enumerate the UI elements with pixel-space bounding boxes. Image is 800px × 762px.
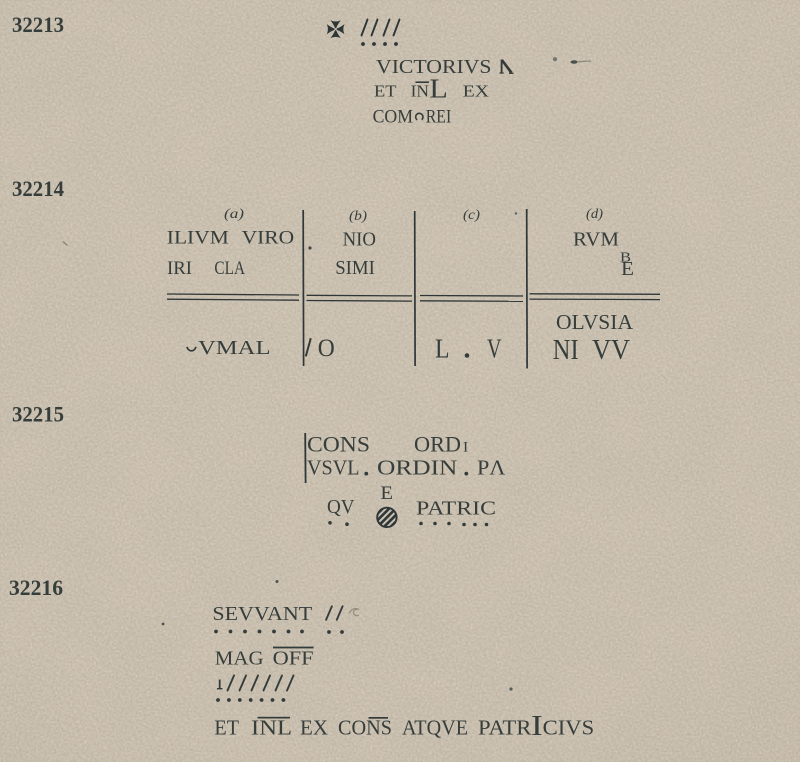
svg-text:ORD: ORD	[414, 432, 461, 457]
svg-text:OFF: OFF	[273, 648, 314, 670]
svg-text:PATR: PATR	[478, 716, 531, 740]
svg-text:OLVSIA: OLVSIA	[556, 310, 633, 334]
svg-text:L: L	[429, 74, 448, 104]
svg-text:32213: 32213	[12, 12, 64, 37]
svg-text:ATQVE: ATQVE	[402, 716, 468, 740]
svg-text:I: I	[531, 711, 543, 742]
svg-text:SEVVANT: SEVVANT	[212, 603, 312, 625]
svg-text:ET: ET	[214, 716, 239, 740]
svg-text:32214: 32214	[12, 176, 64, 201]
svg-text:(d): (d)	[586, 206, 604, 221]
svg-text:32216: 32216	[9, 575, 63, 600]
svg-text:32215: 32215	[12, 402, 64, 427]
svg-text:IN: IN	[411, 82, 429, 101]
svg-text:VIRO: VIRO	[242, 227, 295, 248]
svg-text:MAG: MAG	[215, 648, 264, 670]
svg-text:ET: ET	[374, 82, 397, 101]
svg-text:INL: INL	[251, 716, 292, 740]
svg-text:(a): (a)	[224, 206, 245, 221]
svg-text:CLA: CLA	[214, 258, 245, 279]
svg-text:CONS: CONS	[338, 716, 392, 740]
svg-text:VV: VV	[592, 335, 630, 366]
svg-text:ILIVM: ILIVM	[167, 227, 229, 248]
svg-text:PΛ: PΛ	[477, 456, 506, 480]
svg-text:CONS: CONS	[307, 432, 370, 457]
svg-text:VMAL: VMAL	[198, 337, 271, 359]
svg-text:ORDIN: ORDIN	[377, 456, 457, 480]
svg-text:L: L	[435, 333, 450, 364]
svg-text:QV: QV	[327, 497, 355, 518]
svg-text:I: I	[463, 439, 468, 455]
svg-text:NIO: NIO	[343, 229, 376, 251]
svg-text:EX: EX	[463, 82, 489, 101]
svg-text:EX: EX	[300, 716, 328, 740]
svg-text:NI: NI	[553, 335, 579, 366]
svg-text:SIMI: SIMI	[335, 257, 375, 279]
svg-text:O: O	[318, 333, 335, 362]
svg-text:E: E	[621, 258, 634, 280]
svg-text:(b): (b)	[349, 208, 368, 223]
svg-text:COM: COM	[373, 108, 413, 128]
svg-text:VSVL: VSVL	[307, 456, 360, 480]
svg-text:RVM: RVM	[573, 229, 619, 251]
svg-text:CIVS: CIVS	[543, 716, 595, 740]
svg-text:(c): (c)	[463, 207, 481, 222]
svg-text:PATRIC: PATRIC	[416, 499, 496, 520]
svg-text:REI: REI	[426, 108, 451, 128]
svg-text:V: V	[487, 333, 502, 364]
svg-text:IRI: IRI	[167, 258, 192, 279]
svg-text:E: E	[380, 483, 393, 504]
